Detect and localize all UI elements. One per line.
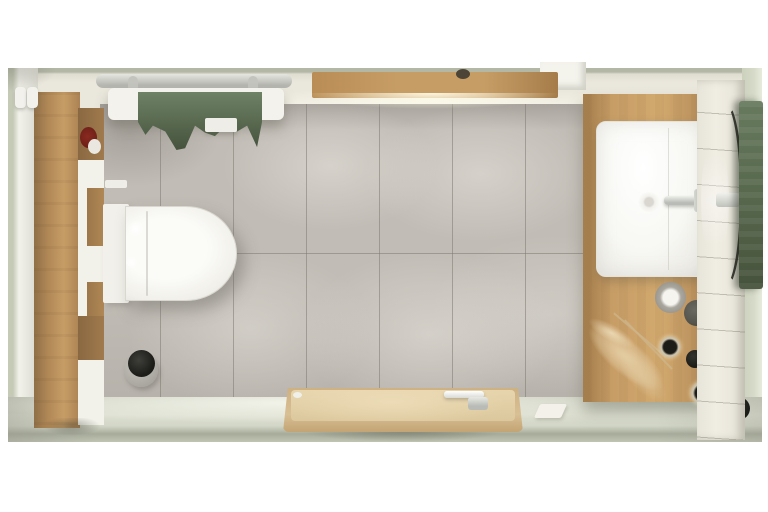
cabinet-shelf-edge [87, 188, 104, 246]
cabinet-shelf [78, 316, 104, 360]
toilet-brush-lid [128, 350, 155, 377]
soap-dispenser [655, 282, 686, 313]
toilet-highlight [128, 220, 143, 237]
radiator-hook [205, 118, 237, 132]
storage-cabinet [34, 92, 80, 428]
toilet-highlight [126, 256, 137, 269]
bottle [15, 87, 26, 108]
bath-towel [739, 101, 763, 289]
toilet [125, 206, 237, 301]
tub-overflow-dot [293, 392, 302, 398]
towel-radiator-rail [96, 74, 292, 88]
toilet-bracket [105, 180, 127, 188]
bottle [27, 87, 38, 108]
tile-grout-line [452, 104, 453, 399]
toilet-lid-seam [146, 211, 148, 296]
round-mirror-rim [705, 100, 743, 290]
basin-drain [638, 192, 660, 212]
cabinet-shelf-edge [87, 282, 104, 316]
tile-grout-line [379, 104, 380, 399]
under-shelf-light [298, 93, 564, 113]
shelf-knob [456, 69, 470, 79]
bathroom-render [0, 0, 768, 512]
tub-faucet-body [468, 397, 488, 410]
cabinet-side-panel [78, 108, 104, 425]
tile-grout-line [525, 104, 526, 399]
tile-grout-line [306, 104, 307, 399]
cabinet-floor-shadow [36, 418, 108, 438]
white-towel-roll [88, 139, 101, 154]
candle-jar [659, 336, 681, 358]
